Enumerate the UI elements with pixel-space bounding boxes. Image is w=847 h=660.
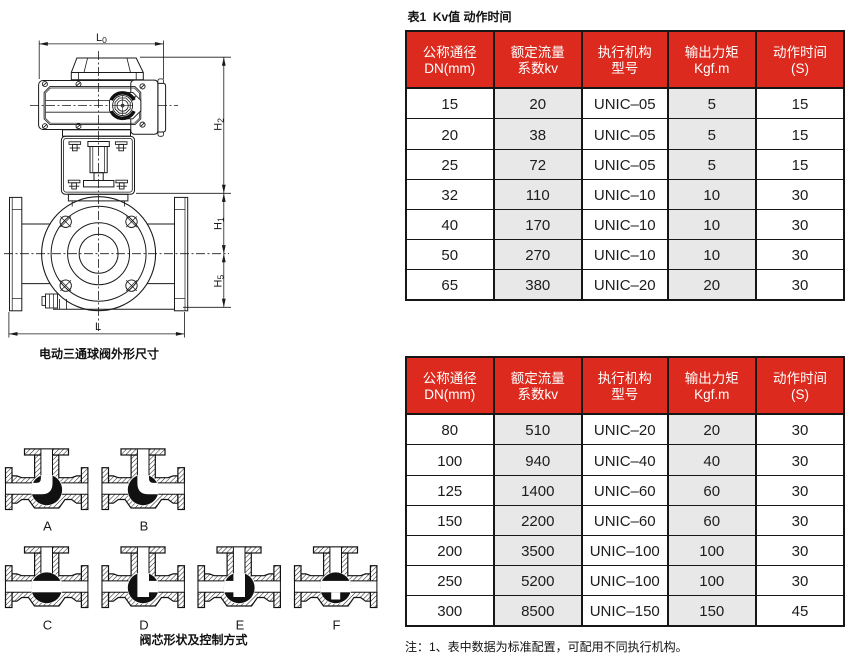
svg-text:A: A (43, 516, 52, 535)
svg-text:H1: H1 (210, 217, 227, 230)
svg-text:L0: L0 (96, 29, 107, 46)
svg-text:L: L (95, 318, 101, 334)
svg-text:F: F (333, 615, 341, 634)
svg-text:B: B (140, 516, 149, 535)
svg-text:H5: H5 (210, 275, 227, 288)
svg-text:C: C (43, 615, 52, 634)
svg-text:H2: H2 (210, 118, 227, 131)
